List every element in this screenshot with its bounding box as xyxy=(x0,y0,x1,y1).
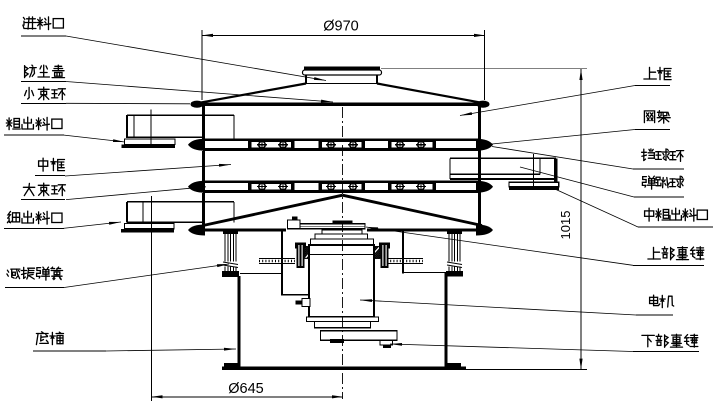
svg-text:Ø970: Ø970 xyxy=(323,19,358,35)
svg-text:Ø645: Ø645 xyxy=(228,381,263,397)
svg-text:1015: 1015 xyxy=(558,211,573,240)
